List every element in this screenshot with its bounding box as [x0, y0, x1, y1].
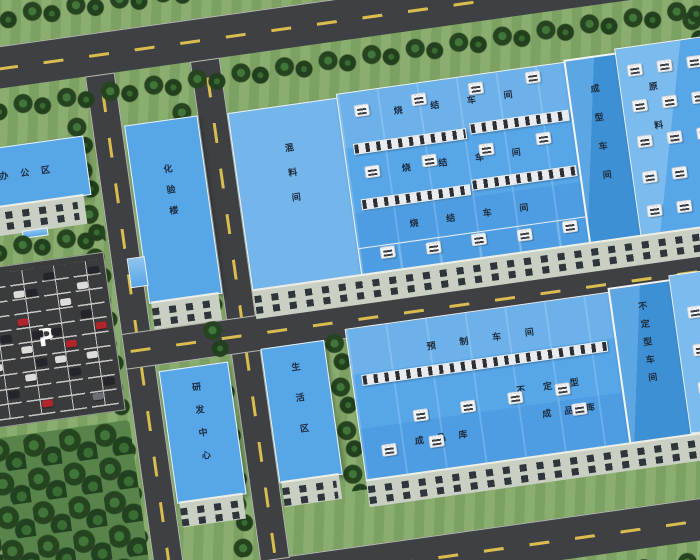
- roof-vent-unit: [428, 434, 445, 448]
- roof-vent-unit: [471, 232, 488, 246]
- roof-vent-unit: [460, 400, 477, 414]
- roof-vent-unit: [696, 126, 700, 140]
- roof-vent-unit: [411, 92, 428, 106]
- parked-car: [43, 272, 55, 280]
- roof-vent-unit: [516, 228, 533, 242]
- roof-vent-unit: [354, 103, 371, 117]
- roof-vent-unit: [692, 343, 700, 357]
- roof-vent-unit: [656, 59, 673, 73]
- parked-car: [36, 358, 48, 366]
- roof-vent-unit: [676, 199, 693, 213]
- roof-vent-unit: [691, 90, 700, 104]
- roof-vent-unit: [627, 63, 644, 77]
- factory-site-plan: 办公区 P 化验楼 研发中心 生活区 混料间: [0, 0, 700, 560]
- roof-vent-unit: [571, 402, 588, 416]
- roof-vent-unit: [421, 154, 438, 168]
- roof-vent-unit: [535, 131, 552, 145]
- parked-car: [51, 327, 63, 335]
- parking-lot: P: [0, 252, 126, 429]
- roof-vent-unit: [468, 81, 485, 95]
- parked-car: [25, 373, 37, 381]
- roof-vent-unit: [380, 245, 397, 259]
- roof-vent-unit: [687, 305, 700, 319]
- roof-vent-unit: [525, 70, 542, 84]
- parked-car: [69, 367, 81, 375]
- roof-vent-unit: [478, 142, 495, 156]
- roof-vent-unit: [661, 95, 678, 109]
- roof-vent-unit: [381, 443, 398, 457]
- roof-vent-unit: [425, 241, 442, 255]
- roof-vent-unit: [507, 391, 524, 405]
- roof-vent-unit: [666, 130, 683, 144]
- roof-vent-unit: [686, 55, 700, 69]
- roof-vent-unit: [554, 382, 571, 396]
- tree-grove: [0, 420, 150, 560]
- roof-vent-unit: [642, 170, 659, 184]
- roof-vent-unit: [364, 165, 381, 179]
- roof-vent-unit: [671, 166, 688, 180]
- roof-vent-unit: [637, 134, 654, 148]
- roof-vent-unit: [646, 204, 663, 218]
- site-plan-scene: 办公区 P 化验楼 研发中心 生活区 混料间: [0, 0, 700, 560]
- roof-vent-unit: [562, 220, 579, 234]
- roof-vent-unit: [632, 99, 649, 113]
- roof-vent-unit: [413, 408, 430, 422]
